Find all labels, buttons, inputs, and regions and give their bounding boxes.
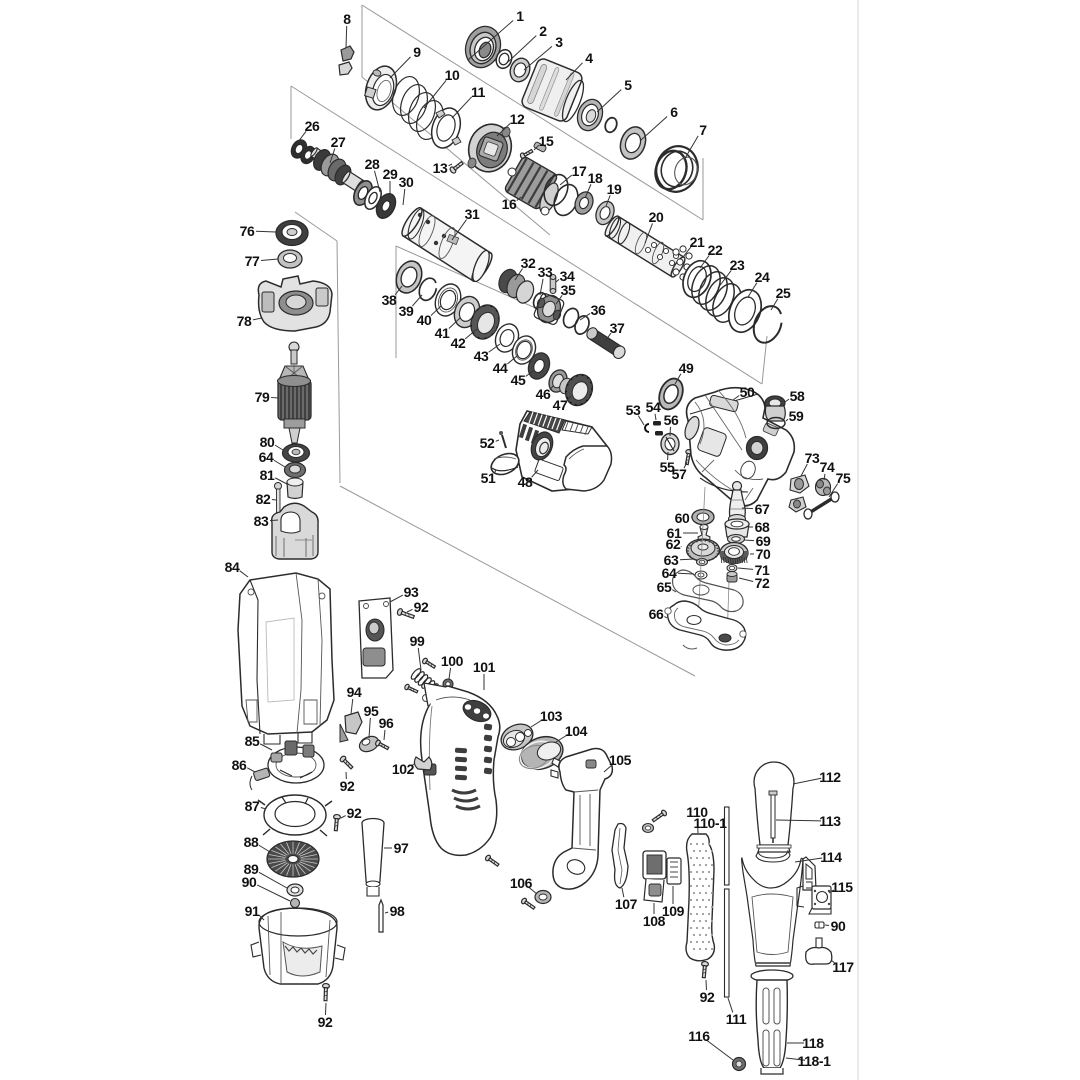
svg-text:49: 49 <box>679 360 694 376</box>
svg-text:45: 45 <box>511 372 526 388</box>
svg-text:19: 19 <box>607 181 622 197</box>
svg-text:76: 76 <box>240 223 255 239</box>
svg-text:66: 66 <box>649 606 664 622</box>
svg-text:18: 18 <box>588 170 603 186</box>
svg-text:101: 101 <box>473 659 496 675</box>
svg-text:58: 58 <box>790 388 805 404</box>
svg-text:78: 78 <box>237 313 252 329</box>
svg-text:27: 27 <box>331 134 346 150</box>
svg-text:32: 32 <box>521 255 536 271</box>
svg-text:62: 62 <box>666 536 681 552</box>
svg-text:9: 9 <box>413 44 421 60</box>
svg-text:99: 99 <box>410 633 425 649</box>
svg-text:20: 20 <box>649 209 664 225</box>
svg-text:43: 43 <box>474 348 489 364</box>
svg-text:51: 51 <box>481 470 496 486</box>
svg-text:56: 56 <box>664 412 679 428</box>
svg-text:93: 93 <box>404 584 419 600</box>
svg-text:30: 30 <box>399 174 414 190</box>
svg-text:53: 53 <box>626 402 641 418</box>
svg-text:102: 102 <box>392 761 415 777</box>
svg-text:104: 104 <box>565 723 588 739</box>
svg-text:6: 6 <box>670 104 678 120</box>
svg-text:77: 77 <box>245 253 260 269</box>
svg-text:95: 95 <box>364 703 379 719</box>
svg-text:44: 44 <box>493 360 508 376</box>
svg-text:24: 24 <box>755 269 770 285</box>
svg-text:47: 47 <box>553 397 568 413</box>
svg-text:54: 54 <box>646 399 661 415</box>
svg-text:88: 88 <box>244 834 259 850</box>
svg-text:36: 36 <box>591 302 606 318</box>
svg-text:96: 96 <box>379 715 394 731</box>
svg-text:41: 41 <box>435 325 450 341</box>
svg-text:25: 25 <box>776 285 791 301</box>
svg-text:1: 1 <box>516 8 524 24</box>
svg-text:82: 82 <box>256 491 271 507</box>
svg-text:110-1: 110-1 <box>693 815 727 831</box>
svg-text:46: 46 <box>536 386 551 402</box>
svg-text:4: 4 <box>585 50 593 66</box>
svg-text:85: 85 <box>245 733 260 749</box>
svg-text:31: 31 <box>465 206 480 222</box>
svg-text:113: 113 <box>819 813 841 829</box>
svg-text:98: 98 <box>390 903 405 919</box>
svg-text:5: 5 <box>624 77 632 93</box>
svg-text:105: 105 <box>609 752 632 768</box>
svg-text:103: 103 <box>540 708 563 724</box>
svg-text:38: 38 <box>382 292 397 308</box>
svg-text:74: 74 <box>820 459 835 475</box>
svg-text:35: 35 <box>561 282 576 298</box>
svg-text:83: 83 <box>254 513 269 529</box>
svg-text:92: 92 <box>340 778 355 794</box>
svg-text:50: 50 <box>740 384 755 400</box>
svg-text:100: 100 <box>441 653 464 669</box>
svg-text:16: 16 <box>502 196 517 212</box>
svg-text:115: 115 <box>831 879 853 895</box>
svg-text:8: 8 <box>343 11 351 27</box>
svg-text:22: 22 <box>708 242 723 258</box>
svg-text:12: 12 <box>510 111 525 127</box>
svg-text:48: 48 <box>518 474 533 490</box>
svg-text:107: 107 <box>615 896 638 912</box>
svg-text:81: 81 <box>260 467 275 483</box>
svg-text:7: 7 <box>699 122 707 138</box>
svg-text:84: 84 <box>225 559 240 575</box>
svg-text:67: 67 <box>755 501 770 517</box>
svg-text:109: 109 <box>662 903 685 919</box>
svg-text:37: 37 <box>610 320 625 336</box>
svg-text:90: 90 <box>242 874 257 890</box>
svg-text:64: 64 <box>259 449 274 465</box>
svg-text:10: 10 <box>445 67 460 83</box>
svg-text:39: 39 <box>399 303 414 319</box>
svg-text:60: 60 <box>675 510 690 526</box>
svg-text:65: 65 <box>657 579 672 595</box>
svg-text:42: 42 <box>451 335 466 351</box>
svg-text:116: 116 <box>688 1028 710 1044</box>
svg-text:28: 28 <box>365 156 380 172</box>
svg-text:23: 23 <box>730 257 745 273</box>
svg-text:57: 57 <box>672 466 687 482</box>
svg-text:29: 29 <box>383 166 398 182</box>
svg-text:87: 87 <box>245 798 260 814</box>
svg-text:33: 33 <box>538 264 553 280</box>
svg-text:117: 117 <box>832 959 854 975</box>
svg-text:94: 94 <box>347 684 362 700</box>
svg-text:15: 15 <box>539 133 554 149</box>
svg-text:92: 92 <box>318 1014 333 1030</box>
svg-text:40: 40 <box>417 312 432 328</box>
svg-text:17: 17 <box>572 163 587 179</box>
svg-text:92: 92 <box>700 989 715 1005</box>
svg-text:86: 86 <box>232 757 247 773</box>
svg-text:26: 26 <box>305 118 320 134</box>
svg-text:52: 52 <box>480 435 495 451</box>
svg-text:114: 114 <box>820 849 842 865</box>
svg-text:59: 59 <box>789 408 804 424</box>
svg-text:97: 97 <box>394 840 409 856</box>
svg-text:118-1: 118-1 <box>797 1053 831 1069</box>
svg-text:91: 91 <box>245 903 260 919</box>
svg-text:90: 90 <box>831 918 846 934</box>
svg-text:92: 92 <box>347 805 362 821</box>
svg-text:118: 118 <box>802 1035 824 1051</box>
svg-text:73: 73 <box>805 450 820 466</box>
svg-text:21: 21 <box>690 234 705 250</box>
svg-text:80: 80 <box>260 434 275 450</box>
svg-text:2: 2 <box>539 23 547 39</box>
svg-text:3: 3 <box>555 34 563 50</box>
svg-text:112: 112 <box>819 769 841 785</box>
svg-text:72: 72 <box>755 575 770 591</box>
svg-text:92: 92 <box>414 599 429 615</box>
svg-text:11: 11 <box>471 84 486 100</box>
svg-text:75: 75 <box>836 470 851 486</box>
svg-text:79: 79 <box>255 389 270 405</box>
svg-text:111: 111 <box>726 1011 747 1027</box>
svg-text:70: 70 <box>756 546 771 562</box>
svg-text:13: 13 <box>433 160 448 176</box>
svg-text:106: 106 <box>510 875 533 891</box>
